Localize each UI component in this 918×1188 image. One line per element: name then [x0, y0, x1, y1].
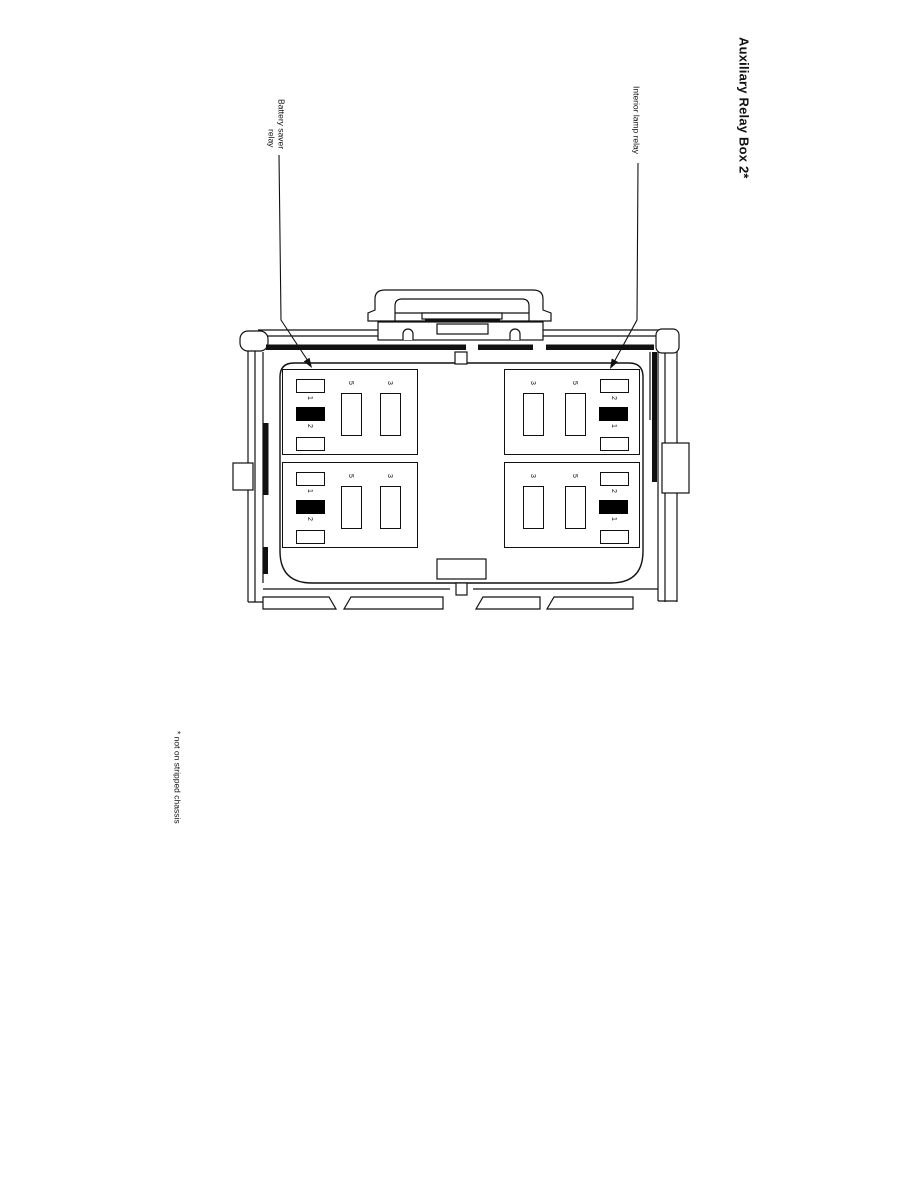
slot-number: 3 [386, 474, 393, 478]
slot-number: 3 [529, 474, 536, 478]
relay-terminal-slot-filled [296, 407, 325, 421]
relay-quadrant-bottom-right: 3 5 2 1 [504, 462, 640, 548]
relay-quadrant-bottom-left: 1 2 5 3 [282, 462, 418, 548]
slot-number: 2 [610, 489, 617, 493]
relay-terminal-slot [523, 486, 544, 529]
slot-number: 5 [347, 381, 354, 385]
relay-terminal-slot [600, 472, 629, 486]
panel-bottom-tab [456, 583, 467, 595]
relay-terminal-slot-filled [599, 407, 628, 421]
relay-terminal-slot [296, 437, 325, 451]
relay-terminal-slot [341, 486, 362, 529]
right-black-bar [652, 352, 657, 482]
relay-terminal-slot [600, 530, 629, 544]
panel-top-tab [455, 352, 467, 364]
relay-terminal-slot-filled [296, 500, 325, 514]
left-black-bar [264, 423, 269, 495]
relay-terminal-slot [523, 393, 544, 436]
band-segment-mid [478, 345, 533, 351]
relay-terminal-slot-filled [599, 500, 628, 514]
left-mount-tab [233, 463, 253, 490]
relay-terminal-slot [600, 379, 629, 393]
left-black-bar-lower [263, 547, 268, 574]
relay-box-line-art [0, 0, 918, 1188]
relay-terminal-slot [380, 393, 401, 436]
slot-number: 2 [306, 517, 313, 521]
slot-number: 5 [571, 474, 578, 478]
relay-quadrant-top-right: 3 5 2 1 [504, 369, 640, 455]
slot-number: 1 [610, 424, 617, 428]
document-page: Auxiliary Relay Box 2* Battery saver rel… [0, 0, 918, 1188]
slot-number: 2 [610, 396, 617, 400]
slot-number: 5 [571, 381, 578, 385]
relay-terminal-slot [600, 437, 629, 451]
top-left-clip [240, 331, 268, 351]
slot-number: 2 [306, 424, 313, 428]
slot-number: 5 [347, 474, 354, 478]
relay-terminal-slot [296, 530, 325, 544]
slot-number: 1 [306, 396, 313, 400]
bottom-feet [263, 597, 633, 609]
slot-number: 1 [610, 517, 617, 521]
relay-terminal-slot [296, 379, 325, 393]
slot-number: 1 [306, 489, 313, 493]
relay-terminal-slot [380, 486, 401, 529]
relay-terminal-slot [296, 472, 325, 486]
relay-quadrant-top-left: 1 2 5 3 [282, 369, 418, 455]
top-right-clip [656, 329, 679, 353]
band-segment-left [266, 345, 466, 351]
label-holder [437, 559, 486, 579]
slot-number: 3 [386, 381, 393, 385]
relay-terminal-slot [565, 486, 586, 529]
band-segment-right [546, 345, 654, 351]
hump-window [422, 313, 502, 319]
interior-leader-line [613, 163, 638, 364]
relay-terminal-slot [341, 393, 362, 436]
collar-window [437, 324, 488, 334]
relay-terminal-slot [565, 393, 586, 436]
right-mount-tab [662, 443, 689, 493]
slot-number: 3 [529, 381, 536, 385]
